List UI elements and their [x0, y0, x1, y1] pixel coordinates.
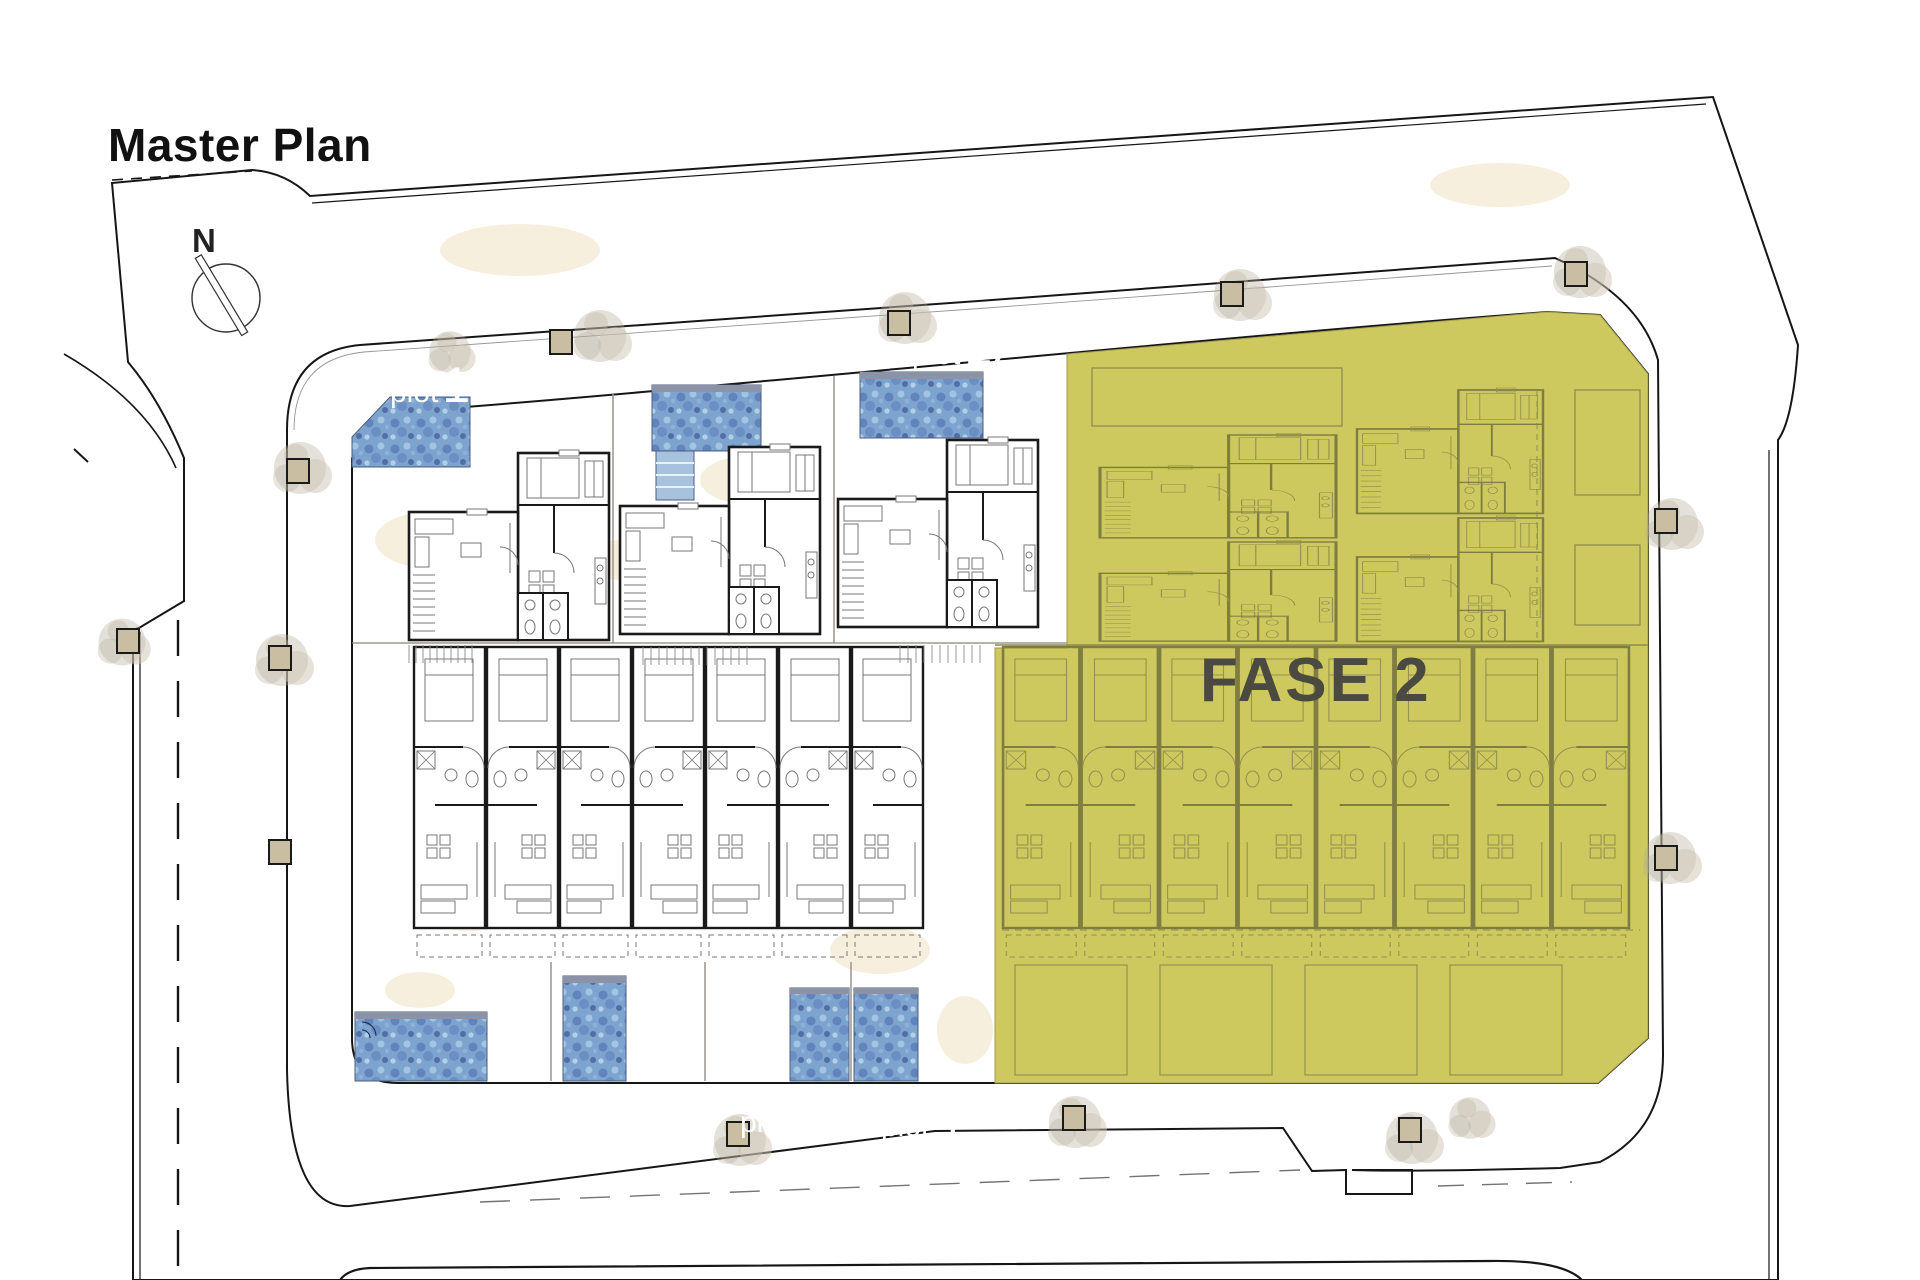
plot-number: 4: [933, 1090, 961, 1148]
pool-plot-2: [563, 976, 626, 1081]
pool-plot-3: [790, 988, 849, 1081]
plot-number: 3: [792, 1086, 820, 1144]
plot-word: plot: [430, 1106, 478, 1140]
plot-word: plot: [390, 376, 438, 410]
north-arrow-icon: [192, 255, 260, 336]
plot-word: plot: [912, 338, 960, 372]
phase-2-label: FASE 2: [1200, 645, 1432, 716]
plot-word: plot: [740, 1106, 788, 1140]
house-row-unit: [633, 647, 704, 957]
page-title: Master Plan: [108, 118, 372, 172]
pool-plot-4: [854, 988, 918, 1081]
plot-label-2: plot 2: [584, 1078, 664, 1136]
house-row-unit: [560, 647, 631, 957]
compass-north-label: N: [192, 222, 216, 260]
house-row-unit: [852, 647, 923, 957]
house-row-unit: [414, 647, 485, 957]
plot-word: plot: [584, 1098, 632, 1132]
plot-label-1: plot 1: [430, 1086, 510, 1144]
house-row-unit: [487, 647, 558, 957]
plot-number: 14: [442, 356, 498, 414]
plot-label-4: plot 4: [881, 1090, 961, 1148]
pool-plot-12: [860, 372, 983, 438]
adjacent-block-outline: [340, 1261, 1582, 1280]
plot-number: 2: [636, 1078, 664, 1136]
master-plan-page: Master Plan N plot 14 plot 13 plot 12 pl…: [0, 0, 1920, 1280]
plot-number: 13: [714, 332, 770, 390]
house-plot-12: [838, 437, 1038, 627]
plot-word: plot: [881, 1110, 929, 1144]
site-plan-drawing: [0, 0, 1920, 1280]
house-row-unit: [779, 647, 850, 957]
pool-plot-1: [355, 1012, 487, 1081]
plot-number: 1: [482, 1086, 510, 1144]
plot-number: 12: [964, 318, 1020, 376]
houses-phase-1: [409, 437, 1038, 957]
house-plot-14: [409, 450, 609, 640]
plot-label-3: plot 3: [740, 1086, 820, 1144]
plot-label-12: plot 12: [912, 318, 1020, 376]
house-row-unit: [706, 647, 777, 957]
road-entry-stub: [1312, 1170, 1412, 1194]
plot-label-14: plot 14: [390, 356, 498, 414]
plot-word: plot: [662, 352, 710, 386]
plot-label-13: plot 13: [662, 332, 770, 390]
